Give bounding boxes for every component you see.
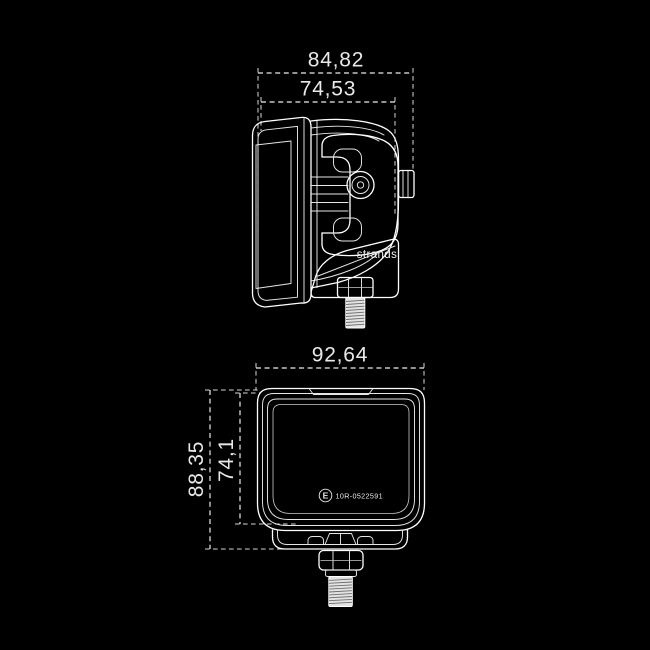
technical-drawing-canvas: 84,82 74,53 <box>0 0 650 650</box>
pivot-bolt <box>347 172 374 199</box>
led-worklight-dimension-drawing: 84,82 74,53 <box>0 0 650 650</box>
rear-dim-width-label: 92,64 <box>312 344 369 367</box>
lamp-rear-body: E 10R-0522591 <box>258 389 425 607</box>
rear-connector <box>399 171 415 198</box>
rear-washer <box>326 570 357 577</box>
e-mark-number: 10R-0522591 <box>336 491 383 500</box>
bracket-tab-left <box>308 537 324 545</box>
lens-face <box>256 141 291 289</box>
lens-bezel <box>258 126 298 300</box>
brand-logo-text: strands <box>357 249 398 261</box>
bracket-tab-right <box>358 537 374 545</box>
rear-hex-nut <box>319 551 363 571</box>
lamp-side-profile: strands <box>253 117 415 328</box>
side-dim-outer-label: 84,82 <box>308 49 365 72</box>
side-dimension-inner: 74,53 <box>261 78 395 217</box>
rear-body-outer <box>258 389 425 531</box>
side-threaded-stud <box>346 298 365 329</box>
rear-dimension-height-outer: 88,35 <box>185 390 293 549</box>
rear-dim-height-inner-label: 74,1 <box>215 438 238 482</box>
side-view: 84,82 74,53 <box>253 49 415 329</box>
lens-outer <box>253 117 312 307</box>
e-mark-letter: E <box>323 491 329 501</box>
side-dimension-outer: 84,82 <box>258 49 413 233</box>
rear-dim-height-outer-label: 88,35 <box>185 441 208 498</box>
heatsink-inner <box>322 157 350 233</box>
side-dim-inner-label: 74,53 <box>300 78 357 101</box>
rear-threaded-stud <box>329 577 353 607</box>
rear-view: 92,64 88,35 74,1 E 10R- <box>185 344 425 607</box>
e-approval-mark: E 10R-0522591 <box>319 489 383 502</box>
rear-dimension-height-inner: 74,1 <box>215 393 297 524</box>
rear-body-line-2 <box>263 394 420 526</box>
rear-mounting-bracket <box>273 530 408 549</box>
rear-dimension-width: 92,64 <box>256 344 424 391</box>
rear-body-line-3 <box>268 399 415 520</box>
